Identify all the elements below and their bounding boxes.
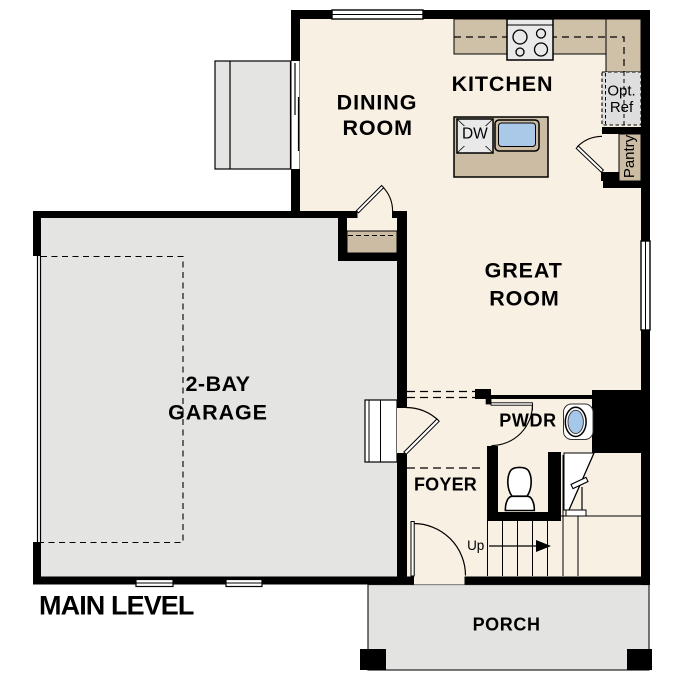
svg-text:Pantry: Pantry	[621, 134, 638, 178]
svg-text:DINING: DINING	[337, 90, 418, 114]
svg-text:FOYER: FOYER	[414, 475, 477, 495]
svg-text:ROOM: ROOM	[342, 116, 412, 140]
svg-text:PWDR: PWDR	[499, 410, 556, 430]
svg-text:MAIN LEVEL: MAIN LEVEL	[39, 591, 194, 621]
svg-text:Ref: Ref	[610, 99, 634, 116]
svg-text:GARAGE: GARAGE	[168, 401, 268, 425]
svg-text:ROOM: ROOM	[489, 286, 559, 310]
svg-text:PORCH: PORCH	[473, 614, 541, 634]
svg-text:DW: DW	[462, 126, 488, 143]
svg-text:Opt.: Opt.	[607, 83, 635, 100]
svg-text:GREAT: GREAT	[485, 259, 563, 283]
svg-text:2-BAY: 2-BAY	[185, 372, 250, 396]
svg-text:Up: Up	[467, 538, 484, 553]
svg-text:KITCHEN: KITCHEN	[452, 72, 554, 96]
